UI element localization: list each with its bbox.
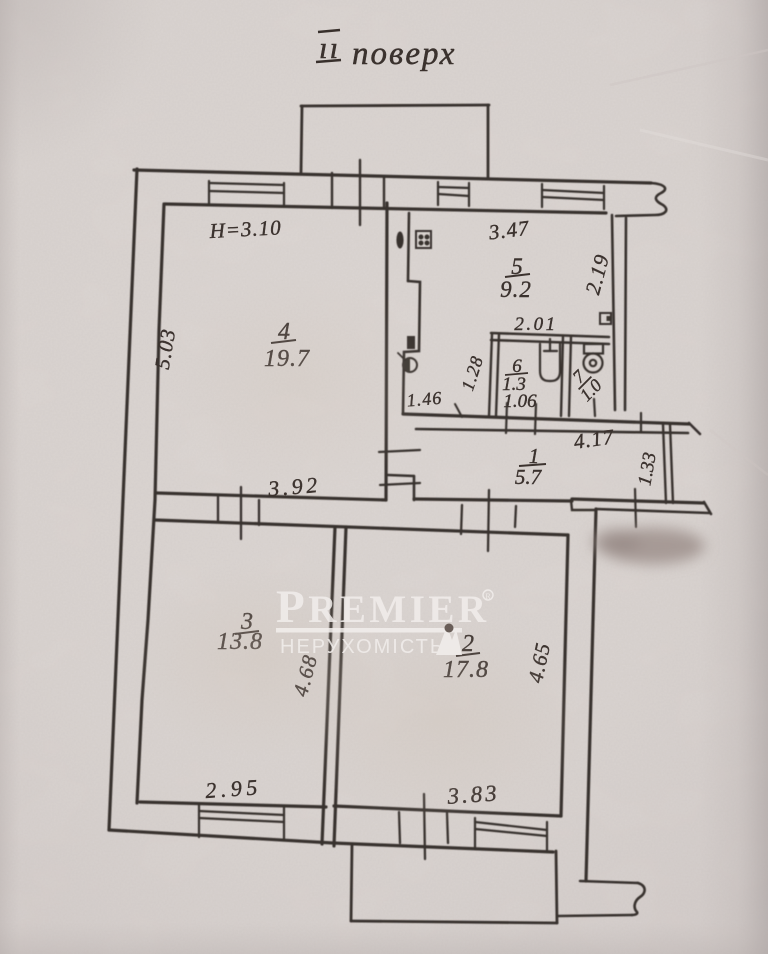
svg-text:поверх: поверх (352, 36, 456, 72)
svg-text:9.2: 9.2 (500, 277, 532, 302)
svg-text:НЕРУХОМІСТЬ: НЕРУХОМІСТЬ (280, 636, 445, 658)
svg-text:3.47: 3.47 (486, 216, 531, 245)
svg-text:2.01: 2.01 (514, 314, 557, 335)
svg-text:5.7: 5.7 (515, 465, 543, 489)
svg-text:R: R (485, 592, 491, 601)
svg-text:1.06: 1.06 (503, 391, 537, 412)
svg-text:2.95: 2.95 (204, 774, 262, 803)
svg-text:Н=3.10: Н=3.10 (208, 215, 282, 243)
svg-text:PREMIER: PREMIER (276, 581, 490, 633)
